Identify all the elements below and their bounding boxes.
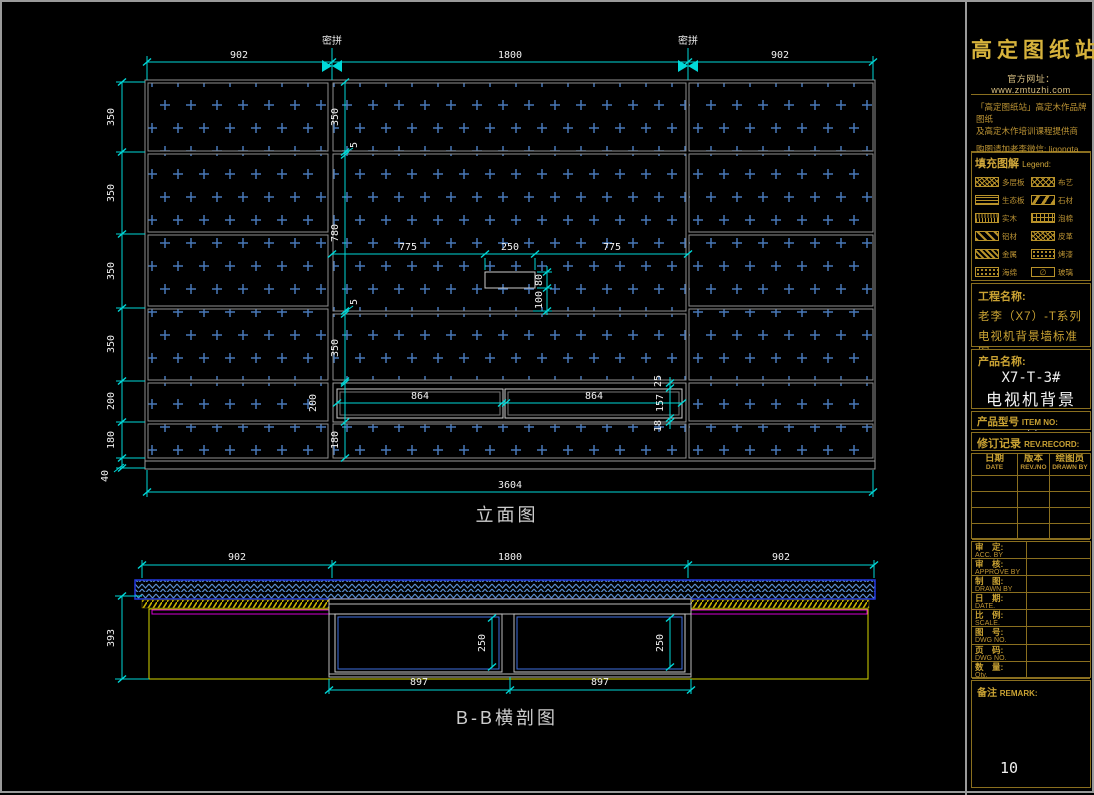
rev-cell (1050, 492, 1090, 508)
svg-text:350: 350 (106, 184, 117, 202)
rev-cell (1018, 492, 1050, 508)
legend-item: 海绵 (975, 263, 1031, 281)
info-label: 审 定:ACC. BY (972, 542, 1027, 559)
info-value (1027, 610, 1090, 627)
svg-text:250: 250 (501, 242, 519, 253)
legend-item: 铝材 (975, 227, 1031, 245)
rev-record-row: 修订记录 REV.RECORD: (971, 432, 1091, 451)
svg-text:100: 100 (534, 291, 545, 309)
svg-text:157: 157 (655, 394, 666, 412)
promo-line: 「高定图纸站」高定木作品牌图纸 (976, 101, 1087, 125)
rev-cell (1050, 508, 1090, 524)
legend-item: 石材 (1031, 191, 1087, 209)
remark-label: 备注 (977, 688, 997, 699)
svg-text:902: 902 (771, 50, 789, 61)
svg-text:350: 350 (106, 335, 117, 353)
info-value (1027, 559, 1090, 576)
item-no-row: 产品型号 ITEM NO: (971, 411, 1091, 430)
page-number: 10 (1000, 759, 1018, 777)
drawing-sheet: 902 1800 902 密拼 密拼 350 350 350 350 200 1… (0, 0, 1094, 793)
info-rows: 审 定:ACC. BY 审 核:APPROVE BY 制 图:DRAWN BY … (971, 541, 1091, 678)
svg-text:897: 897 (591, 677, 609, 688)
svg-text:350: 350 (330, 108, 341, 126)
hatch-swatch (1031, 249, 1055, 259)
svg-text:864: 864 (411, 391, 429, 402)
svg-text:密拼: 密拼 (678, 34, 698, 47)
svg-text:350: 350 (330, 339, 341, 357)
legend-item: 金属 (975, 245, 1031, 263)
rev-cell (1018, 524, 1050, 540)
hatch-swatch (1031, 231, 1055, 241)
info-label: 数 量:Qty. (972, 662, 1027, 679)
svg-text:1800: 1800 (498, 552, 522, 563)
project-series: 老李（X7）-T系列 (978, 308, 1084, 324)
section-title: B-B横剖图 (456, 708, 558, 728)
hatch-swatch (1031, 213, 1055, 223)
info-value (1027, 576, 1090, 593)
svg-text:350: 350 (106, 262, 117, 280)
svg-text:250: 250 (655, 634, 666, 652)
rev-cell (1050, 476, 1090, 492)
svg-text:902: 902 (228, 552, 246, 563)
fill-legend: 填充图解 Legend: 多层板 布艺 生态板 石材 实木 泡棉 铝材 皮革 金… (971, 152, 1091, 281)
legend-item: 实木 (975, 209, 1031, 227)
svg-text:902: 902 (772, 552, 790, 563)
section-wall-panel-band (135, 580, 875, 599)
promo-line: 及高定木作培训课程提供商 (976, 125, 1087, 137)
title-block: 高定图纸站 官方网址： www.zmtuzhi.com 「高定图纸站」高定木作品… (965, 2, 1094, 795)
legend-item: 生态板 (975, 191, 1031, 209)
svg-text:393: 393 (106, 629, 117, 647)
svg-text:40: 40 (100, 470, 111, 482)
info-label: 制 图:DRAWN BY (972, 576, 1027, 593)
legend-item: 皮革 (1031, 227, 1087, 245)
svg-text:902: 902 (230, 50, 248, 61)
remark-label-en: REMARK: (1000, 689, 1038, 698)
rev-col-version: 版本 REV./NO (1018, 454, 1050, 476)
info-label: 比 例:SCALE. (972, 610, 1027, 627)
svg-text:5: 5 (349, 142, 360, 148)
info-value (1027, 542, 1090, 559)
rev-cell (972, 492, 1018, 508)
rev-cell (972, 524, 1018, 540)
hatch-swatch (975, 213, 999, 223)
info-value (1027, 645, 1090, 662)
legend-item: 多层板 (975, 173, 1031, 191)
legend-item: ∅玻璃 (1031, 263, 1087, 281)
legend-title-en: Legend: (1022, 160, 1051, 169)
product-name-box: 产品名称: X7-T-3# 电视机背景墙 (971, 349, 1091, 409)
svg-text:80: 80 (534, 274, 545, 286)
svg-text:775: 775 (603, 242, 621, 253)
svg-text:200: 200 (106, 392, 117, 410)
rev-cell (1050, 524, 1090, 540)
info-label: 图 号:DWG NO. (972, 627, 1027, 644)
svg-text:3604: 3604 (498, 480, 522, 491)
rev-col-drawnby: 绘图员 DRAWN BY (1050, 454, 1090, 476)
legend-title: 填充图解 (975, 158, 1019, 170)
rev-cell (972, 476, 1018, 492)
rev-cell (972, 508, 1018, 524)
info-value (1027, 662, 1090, 679)
hatch-swatch: ∅ (1031, 267, 1055, 277)
svg-text:1800: 1800 (498, 50, 522, 61)
svg-text:350: 350 (106, 108, 117, 126)
hatch-swatch (1031, 195, 1055, 205)
svg-text:25: 25 (653, 375, 664, 387)
cad-canvas: 902 1800 902 密拼 密拼 350 350 350 350 200 1… (2, 2, 965, 791)
brand-logo-text: 高定图纸站 (971, 34, 1091, 64)
elevation-title: 立面图 (476, 505, 539, 525)
svg-text:密拼: 密拼 (322, 34, 342, 47)
revision-table: 日期 DATE 版本 REV./NO 绘图员 DRAWN BY (971, 453, 1091, 539)
svg-text:180: 180 (330, 431, 341, 449)
svg-text:775: 775 (399, 242, 417, 253)
rev-col-date: 日期 DATE (972, 454, 1018, 476)
project-name-box: 工程名称: 老李（X7）-T系列 电视机背景墙标准图 (971, 283, 1091, 347)
hatch-swatch (975, 267, 999, 277)
svg-text:180: 180 (106, 431, 117, 449)
section-body (135, 580, 875, 679)
elevation-wall-panels (145, 80, 875, 469)
product-label: 产品名称: (978, 353, 1084, 369)
promo-text: 「高定图纸站」高定木作品牌图纸 及高定木作培训课程提供商 购图请加老李微信: l… (971, 94, 1091, 152)
rev-cell (1018, 476, 1050, 492)
hatch-swatch (975, 177, 999, 187)
legend-item: 布艺 (1031, 173, 1087, 191)
project-label: 工程名称: (978, 288, 1084, 304)
hatch-swatch (975, 231, 999, 241)
brand-header: 高定图纸站 官方网址： www.zmtuzhi.com (971, 8, 1091, 94)
svg-text:200: 200 (308, 394, 319, 412)
product-code: X7-T-3# (978, 370, 1084, 386)
hatch-swatch (1031, 177, 1055, 187)
svg-text:864: 864 (585, 391, 603, 402)
brand-website: 官方网址： www.zmtuzhi.com (971, 72, 1091, 95)
info-label: 页 码:DWG NO. (972, 645, 1027, 662)
legend-item: 泡棉 (1031, 209, 1087, 227)
remark-box: 备注 REMARK: 10 (971, 680, 1091, 788)
info-label: 日 期:DATE. (972, 593, 1027, 610)
hatch-swatch (975, 249, 999, 259)
info-label: 审 核:APPROVE BY (972, 559, 1027, 576)
legend-item: 烤漆 (1031, 245, 1087, 263)
info-value (1027, 627, 1090, 644)
svg-text:780: 780 (330, 224, 341, 242)
hatch-swatch (975, 195, 999, 205)
legend-grid: 多层板 布艺 生态板 石材 实木 泡棉 铝材 皮革 金属 烤漆 海绵 ∅玻璃 (975, 173, 1087, 281)
svg-text:250: 250 (477, 634, 488, 652)
info-value (1027, 593, 1090, 610)
svg-text:5: 5 (349, 299, 360, 305)
svg-text:897: 897 (410, 677, 428, 688)
svg-text:18: 18 (653, 420, 664, 432)
rev-cell (1018, 508, 1050, 524)
